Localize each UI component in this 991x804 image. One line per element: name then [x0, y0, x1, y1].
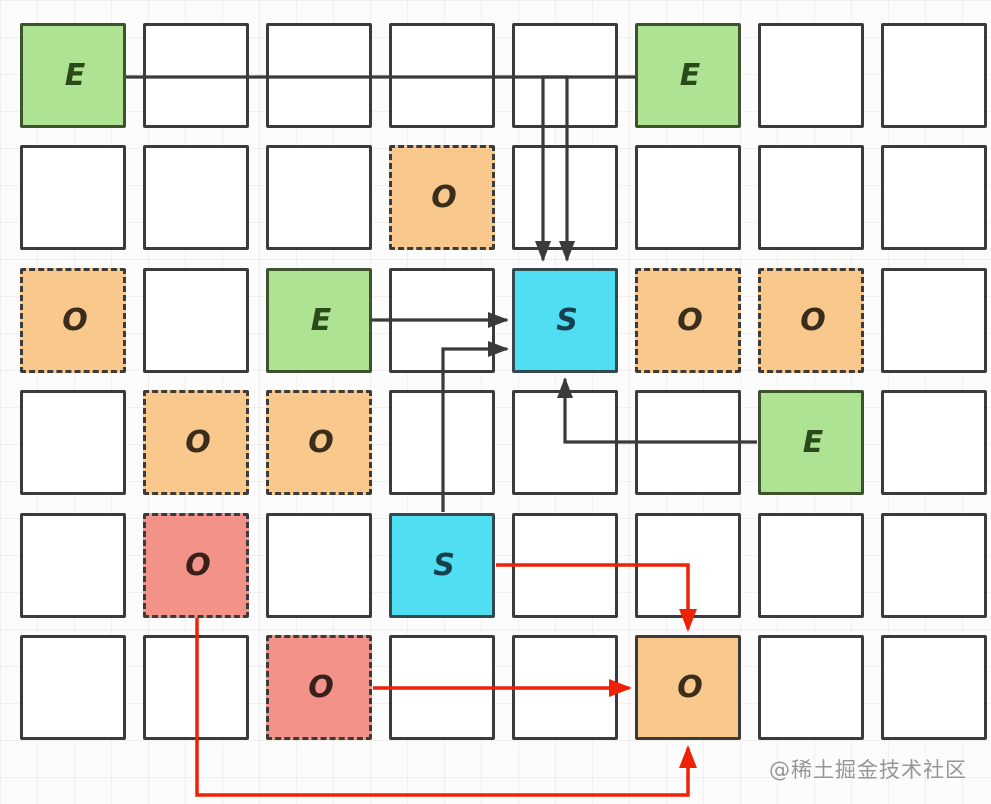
grid-cell [20, 390, 126, 495]
cell-label: O [677, 673, 703, 703]
event-cell: E [20, 23, 126, 128]
inactive-observer-cell: O [143, 513, 249, 618]
target-observer-cell: O [635, 635, 741, 740]
grid-cell [266, 513, 372, 618]
event-cell: E [758, 390, 864, 495]
observer-cell: O [758, 268, 864, 373]
event-cell: E [266, 268, 372, 373]
grid-cell [20, 145, 126, 250]
diagram-page: { "page": { "watermark": "@稀土掘金技术社区" }, … [0, 0, 991, 804]
observer-cell: O [266, 390, 372, 495]
cell-label: O [185, 428, 211, 458]
event-cell: E [635, 23, 741, 128]
subscriber-cell: S [389, 513, 495, 618]
grid-cell [20, 635, 126, 740]
observer-cell: O [20, 268, 126, 373]
subscriber-cell: S [512, 268, 618, 373]
grid-cell [389, 390, 495, 495]
grid-cell [143, 23, 249, 128]
cell-label: O [677, 306, 703, 336]
grid-cell [881, 513, 987, 618]
grid-cell [143, 268, 249, 373]
grid-cell [266, 23, 372, 128]
grid-cell [20, 513, 126, 618]
grid-cell [143, 635, 249, 740]
grid-cell [635, 390, 741, 495]
cell-label: S [433, 551, 455, 581]
grid-cell [389, 635, 495, 740]
grid-cell [635, 513, 741, 618]
cell-label: O [62, 306, 88, 336]
inactive-observer-cell: O [266, 635, 372, 740]
grid-cell [758, 23, 864, 128]
cell-label: O [308, 673, 334, 703]
grid-cell [266, 145, 372, 250]
grid-cell [758, 513, 864, 618]
observer-cell: O [143, 390, 249, 495]
cell-label: O [800, 306, 826, 336]
cell-label: E [680, 61, 701, 91]
watermark: @稀土掘金技术社区 [769, 754, 967, 784]
grid-cell [389, 23, 495, 128]
observer-cell: O [389, 145, 495, 250]
cell-label: O [308, 428, 334, 458]
grid-cell [881, 23, 987, 128]
grid-cell [758, 635, 864, 740]
grid-cell [881, 145, 987, 250]
observer-cell: O [635, 268, 741, 373]
grid-cell [512, 635, 618, 740]
cell-label: E [311, 306, 332, 336]
grid-cell [758, 145, 864, 250]
grid-cell [512, 23, 618, 128]
grid-cell [881, 268, 987, 373]
grid-cell [512, 390, 618, 495]
grid-cell [512, 145, 618, 250]
cell-label: O [185, 551, 211, 581]
grid-cell [881, 390, 987, 495]
grid-cell [143, 145, 249, 250]
grid-cell [881, 635, 987, 740]
grid-diagram: EEOOESOOOOEOSOO @稀土掘金技术社区 [0, 0, 991, 804]
cell-label: O [431, 183, 457, 213]
cell-label: S [556, 306, 578, 336]
grid-cell [512, 513, 618, 618]
grid-cell [635, 145, 741, 250]
cell-label: E [803, 428, 824, 458]
grid-cell [389, 268, 495, 373]
cell-label: E [65, 61, 86, 91]
